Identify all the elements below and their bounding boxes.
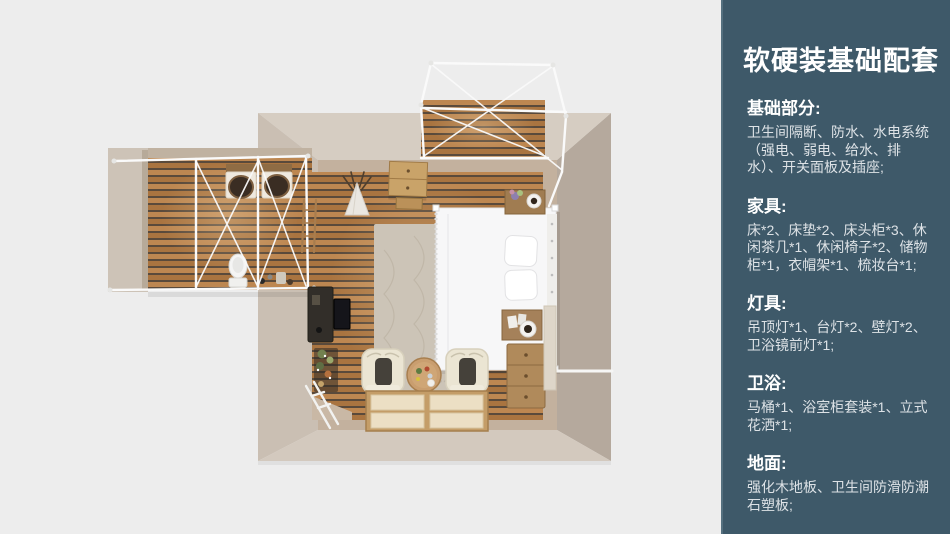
floorplan-svg — [0, 0, 721, 534]
floorplan-panel — [0, 0, 721, 534]
section-lighting: 灯具: 吊顶灯*1、台灯*2、壁灯*2、卫浴镜前灯*1; — [747, 293, 939, 354]
section-body: 床*2、床垫*2、床头柜*3、休闲茶几*1、休闲椅子*2、储物柜*1，衣帽架*1… — [747, 222, 935, 275]
nightstand-bottom — [502, 310, 542, 340]
armchair-right — [446, 349, 488, 393]
tv — [334, 299, 350, 329]
section-heading: 灯具: — [747, 293, 939, 315]
section-basics: 基础部分: 卫生间隔断、防水、水电系统（强电、弱电、给水、排水）、开关面板及插座… — [747, 98, 939, 177]
pillow-bottom — [504, 269, 537, 300]
section-body: 强化木地板、卫生间防滑防潮石塑板; — [747, 479, 935, 514]
sidebar-title: 软硬装基础配套 — [743, 46, 939, 76]
desk — [308, 287, 333, 342]
sidebar: 软硬装基础配套 基础部分: 卫生间隔断、防水、水电系统（强电、弱电、给水、排水）… — [721, 0, 950, 534]
pillow-top — [504, 235, 538, 267]
section-furniture: 家具: 床*2、床垫*2、床头柜*3、休闲茶几*1、休闲椅子*2、储物柜*1，衣… — [747, 196, 939, 275]
tatami-mats — [366, 391, 488, 431]
section-heading: 卫浴: — [747, 373, 939, 395]
section-heading: 家具: — [747, 196, 939, 218]
section-body: 马桶*1、浴室柜套装*1、立式花洒*1; — [747, 399, 935, 434]
section-bathroom: 卫浴: 马桶*1、浴室柜套装*1、立式花洒*1; — [747, 373, 939, 434]
dresser — [507, 344, 545, 408]
screenshot-root: 软硬装基础配套 基础部分: 卫生间隔断、防水、水电系统（强电、弱电、给水、排水）… — [0, 0, 950, 534]
nightstand-top — [505, 190, 545, 215]
section-heading: 基础部分: — [747, 98, 939, 120]
mirror-panel — [544, 306, 556, 390]
plant-stand — [314, 348, 338, 392]
section-body: 卫生间隔断、防水、水电系统（强电、弱电、给水、排水）、开关面板及插座; — [747, 124, 935, 177]
section-body: 吊顶灯*1、台灯*2、壁灯*2、卫浴镜前灯*1; — [747, 319, 935, 354]
armchair-left — [362, 349, 404, 393]
section-heading: 地面: — [747, 453, 939, 475]
coffee-table — [407, 358, 442, 392]
bathroom-annex — [108, 148, 319, 297]
section-flooring: 地面: 强化木地板、卫生间防滑防潮石塑板; — [747, 453, 939, 514]
